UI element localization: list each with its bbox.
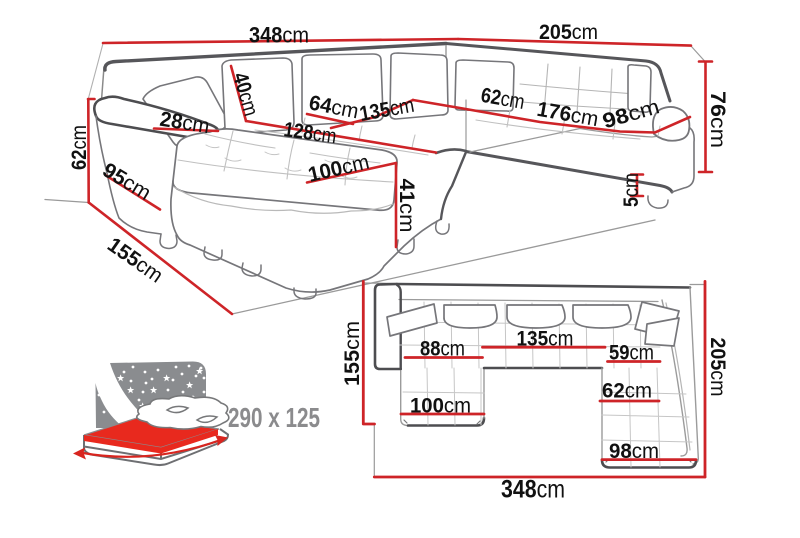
svg-text:205cm: 205cm [539,21,598,44]
svg-text:348cm: 348cm [249,23,309,48]
svg-text:76cm: 76cm [706,91,729,148]
svg-text:135cm: 135cm [517,328,574,351]
svg-text:205cm: 205cm [706,338,729,397]
svg-text:88cm: 88cm [420,338,465,361]
svg-text:100cm: 100cm [410,395,471,418]
svg-text:62cm: 62cm [68,125,91,170]
svg-text:155cm: 155cm [341,321,364,386]
svg-text:98cm: 98cm [609,440,659,463]
svg-text:62cm: 62cm [602,380,652,403]
svg-text:59cm: 59cm [609,342,654,365]
svg-text:290 x 125: 290 x 125 [228,402,320,433]
svg-text:41cm: 41cm [395,179,418,233]
svg-text:348cm: 348cm [501,476,565,504]
svg-text:5cm: 5cm [620,173,643,207]
